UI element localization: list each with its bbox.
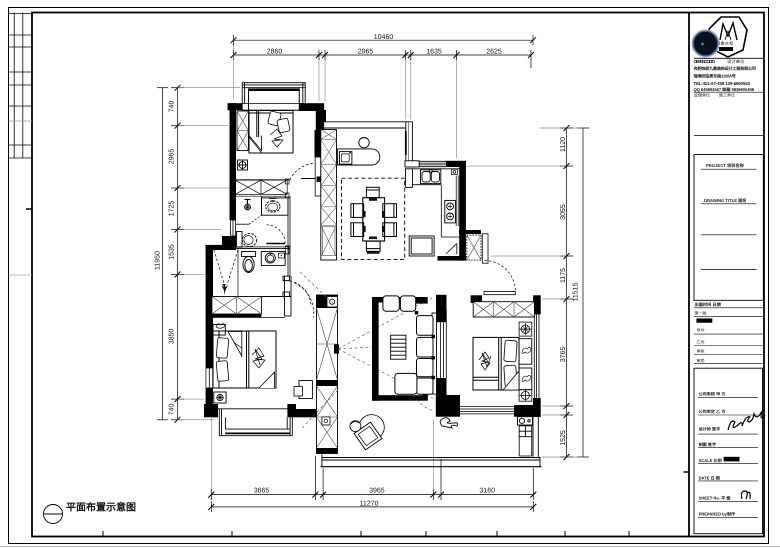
svg-text:监理单位: 监理单位 (694, 92, 710, 97)
svg-text:PREPARED by制作: PREPARED by制作 (699, 512, 736, 517)
svg-text:出图时间 日期: 出图时间 日期 (695, 302, 721, 307)
svg-text:1725: 1725 (169, 201, 176, 217)
svg-text:3160: 3160 (479, 488, 495, 495)
svg-text:3765: 3765 (560, 347, 567, 363)
svg-text:3965: 3965 (369, 488, 385, 495)
svg-text:10460: 10460 (374, 34, 394, 41)
svg-text:11270: 11270 (360, 500, 379, 507)
svg-text:施工单位: 施工单位 (719, 92, 735, 97)
svg-text:2965: 2965 (358, 49, 374, 56)
svg-text:2625: 2625 (486, 49, 502, 56)
svg-text:设计师 签字: 设计师 签字 (699, 427, 721, 432)
svg-text:2860: 2860 (267, 49, 283, 56)
svg-text:制图 签字: 制图 签字 (699, 442, 717, 447)
svg-text:SHEET No. 平 面: SHEET No. 平 面 (699, 496, 731, 501)
svg-text:3850: 3850 (169, 329, 176, 345)
svg-text:第一版: 第一版 (695, 311, 707, 316)
svg-text:DESIGN CO-LTD: DESIGN CO-LTD (694, 59, 715, 64)
svg-text:2965: 2965 (169, 149, 176, 165)
svg-text:740: 740 (169, 101, 176, 113)
svg-text:乙方:: 乙方: (697, 340, 706, 345)
svg-text:11950: 11950 (155, 251, 162, 270)
svg-text:1175: 1175 (560, 268, 567, 283)
svg-text:1635: 1635 (426, 49, 442, 56)
svg-text:1120: 1120 (560, 137, 567, 152)
svg-text:审核:: 审核: (697, 349, 706, 354)
svg-text:DRAWING TITLE 图名: DRAWING TITLE 图名 (704, 198, 747, 203)
svg-text:1525: 1525 (560, 430, 567, 446)
svg-text:SCALE 比例: SCALE 比例 (699, 458, 722, 463)
svg-text:平面布置示意图: 平面布置示意图 (66, 502, 136, 514)
svg-text:合肥饰家九鼎装饰设计工程有限公司: 合肥饰家九鼎装饰设计工程有限公司 (693, 66, 757, 71)
svg-text:3665: 3665 (254, 488, 270, 495)
svg-text:11515: 11515 (573, 282, 580, 301)
svg-text:公司审定 乙 方: 公司审定 乙 方 (699, 409, 726, 414)
svg-text:1535: 1535 (169, 244, 176, 260)
svg-text:PROJECT 项目名称: PROJECT 项目名称 (706, 163, 745, 168)
svg-text:3055: 3055 (560, 204, 567, 220)
svg-text:甲方:: 甲方: (697, 328, 706, 333)
svg-text:公司审核 甲 方: 公司审核 甲 方 (699, 392, 726, 397)
svg-text:瑶海区临泉东路1150A号: 瑶海区临泉东路1150A号 (694, 74, 737, 79)
svg-text:DATE 日 期: DATE 日 期 (699, 476, 720, 481)
svg-text:740: 740 (169, 404, 176, 416)
svg-text:审定:: 审定: (697, 358, 706, 363)
svg-text:设计单位: 设计单位 (727, 59, 745, 64)
svg-text:TEL:451-67-459 139-6660563: TEL:451-67-459 139-6660563 (694, 81, 751, 86)
